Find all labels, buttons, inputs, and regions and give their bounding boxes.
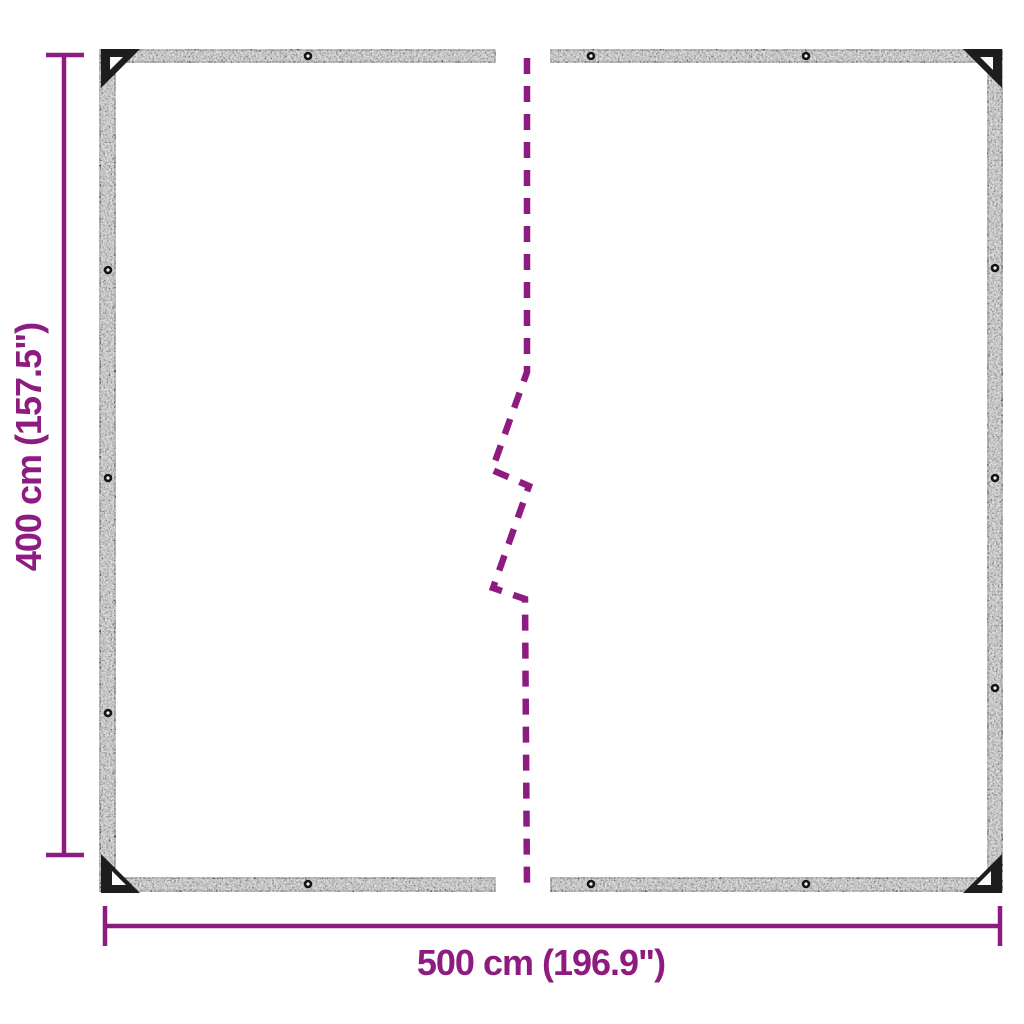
grommet-hole (589, 54, 592, 57)
width-dimension: 500 cm (196.9") (105, 906, 1000, 983)
corner-reinforcement-bottom-right (963, 854, 1002, 893)
grommet-hole (106, 476, 109, 479)
grommet-hole (993, 266, 996, 269)
tarpaulin-dimension-diagram: 400 cm (157.5") 500 cm (196.9") (0, 0, 1024, 1024)
grommet-hole (106, 268, 109, 271)
grommet-hole (306, 882, 309, 885)
corner-reinforcement-top-left (101, 49, 140, 88)
tarp-outline-left-half (100, 50, 495, 891)
tarp-top-edge-left (102, 50, 495, 62)
diagram-canvas: 400 cm (157.5") 500 cm (196.9") (0, 0, 1024, 1024)
grommet-hole (993, 476, 996, 479)
tarp-right-edge (988, 50, 1002, 891)
grommet-hole (804, 54, 807, 57)
height-dimension: 400 cm (157.5") (8, 55, 84, 855)
grommet-hole (993, 686, 996, 689)
tarp-bottom-edge-right (551, 878, 1002, 891)
tarp-bottom-edge-left (102, 878, 495, 891)
break-line (492, 58, 529, 888)
grommet-hole (306, 54, 309, 57)
grommet-hole (106, 711, 109, 714)
tarp-left-edge (100, 50, 115, 891)
corner-reinforcements (101, 49, 1002, 893)
tarp-outline-right-half (551, 50, 1002, 891)
grommet-hole (589, 882, 592, 885)
height-label: 400 cm (157.5") (8, 323, 49, 571)
tarp-top-edge-right (551, 50, 1002, 62)
grommet-hole (804, 882, 807, 885)
grommets-layer (104, 52, 1000, 889)
width-label: 500 cm (196.9") (417, 942, 665, 983)
